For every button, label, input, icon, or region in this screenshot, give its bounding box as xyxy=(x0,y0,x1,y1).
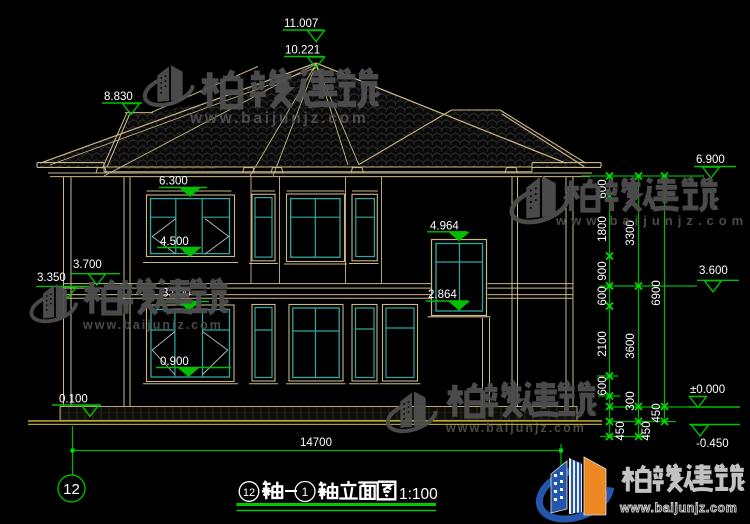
svg-text:4.964: 4.964 xyxy=(430,221,459,233)
svg-text:1: 1 xyxy=(302,485,309,499)
svg-text:www.baijunjz.com: www.baijunjz.com xyxy=(555,213,748,228)
svg-text:450: 450 xyxy=(641,421,653,440)
svg-text:3600: 3600 xyxy=(625,333,637,359)
svg-text:11.007: 11.007 xyxy=(284,18,318,30)
svg-text:600: 600 xyxy=(597,286,609,305)
svg-text:1:100: 1:100 xyxy=(399,486,438,503)
svg-text:0.900: 0.900 xyxy=(160,356,189,368)
svg-text:0.100: 0.100 xyxy=(59,394,88,406)
svg-text:3.700: 3.700 xyxy=(73,259,102,271)
svg-text:12: 12 xyxy=(63,481,80,498)
svg-text:900: 900 xyxy=(597,261,609,280)
svg-text:2100: 2100 xyxy=(597,331,609,357)
svg-text:8.830: 8.830 xyxy=(104,91,133,103)
svg-text:www.baijunjz.com: www.baijunjz.com xyxy=(619,501,737,515)
svg-text:12: 12 xyxy=(243,487,255,499)
svg-text:6.300: 6.300 xyxy=(159,176,188,188)
svg-text:www.baijunjz.com: www.baijunjz.com xyxy=(445,421,586,435)
svg-text:3.350: 3.350 xyxy=(37,272,66,284)
svg-text:2.864: 2.864 xyxy=(428,289,457,301)
svg-text:4.500: 4.500 xyxy=(160,236,189,248)
svg-text:450: 450 xyxy=(615,421,627,440)
svg-text:300: 300 xyxy=(625,391,637,410)
svg-text:14700: 14700 xyxy=(300,437,332,449)
svg-text:3.600: 3.600 xyxy=(699,265,728,277)
svg-text:600: 600 xyxy=(597,376,609,395)
svg-text:6.900: 6.900 xyxy=(696,154,725,166)
svg-text:-0.450: -0.450 xyxy=(696,438,729,450)
svg-text:www.baijunjz.com: www.baijunjz.com xyxy=(82,318,223,332)
svg-text:www.baijunjz.com: www.baijunjz.com xyxy=(189,110,369,127)
svg-text:10.221: 10.221 xyxy=(285,45,320,57)
svg-text:±0.000: ±0.000 xyxy=(690,384,725,396)
svg-text:6900: 6900 xyxy=(651,280,663,306)
svg-text:450: 450 xyxy=(651,403,663,422)
